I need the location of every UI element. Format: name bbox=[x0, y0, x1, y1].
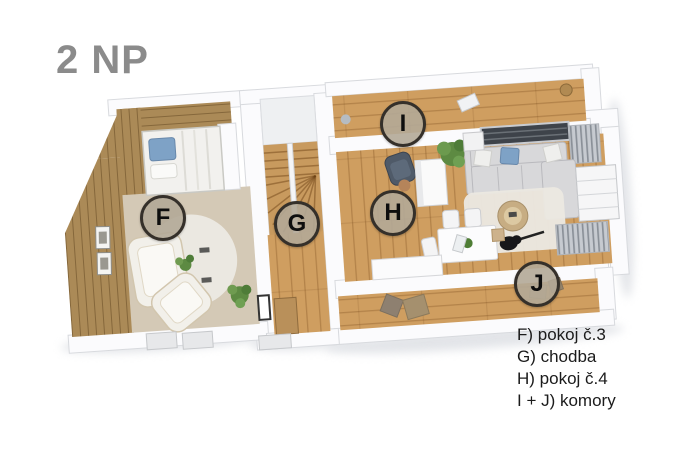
sofa-pillow bbox=[474, 149, 492, 167]
room-label-f: F bbox=[140, 195, 186, 241]
rug-item bbox=[199, 247, 209, 253]
wood-cabinet bbox=[274, 297, 298, 334]
legend-item-f: F) pokoj č.3 bbox=[517, 324, 616, 346]
stair-landing bbox=[260, 96, 317, 146]
dining-chair bbox=[442, 210, 459, 229]
table-item bbox=[509, 212, 517, 218]
sideboard bbox=[372, 255, 443, 280]
roof-window bbox=[259, 334, 292, 350]
legend-item-ij: I + J) komory bbox=[517, 390, 616, 412]
picture-frame bbox=[258, 295, 271, 320]
room-label-j: J bbox=[514, 261, 560, 307]
roof-window bbox=[182, 331, 213, 349]
louver-panel bbox=[569, 124, 602, 164]
roof-window bbox=[146, 332, 177, 350]
bed bbox=[142, 126, 224, 195]
sofa-pillow bbox=[543, 143, 562, 162]
vase bbox=[560, 84, 573, 97]
pillow-white bbox=[150, 163, 177, 179]
legend-item-h: H) pokoj č.4 bbox=[517, 368, 616, 390]
sofa-pillow-blue bbox=[500, 147, 519, 164]
rug-item bbox=[201, 277, 211, 283]
stool bbox=[492, 229, 505, 242]
legend: F) pokoj č.3 G) chodba H) pokoj č.4 I + … bbox=[517, 324, 616, 412]
dining-chair bbox=[464, 208, 481, 227]
side-table bbox=[463, 132, 484, 151]
pillow-blue bbox=[149, 137, 176, 161]
legend-item-g: G) chodba bbox=[517, 346, 616, 368]
floor-title: 2 NP bbox=[56, 38, 149, 83]
room-label-g: G bbox=[274, 201, 320, 247]
room-label-i: I bbox=[380, 101, 426, 147]
louver-panel-low bbox=[556, 221, 610, 255]
room-label-h: H bbox=[370, 190, 416, 236]
floorplan-screenshot: 2 NP FGHIJ F) pokoj č.3 G) chodba H) pok… bbox=[0, 0, 686, 457]
